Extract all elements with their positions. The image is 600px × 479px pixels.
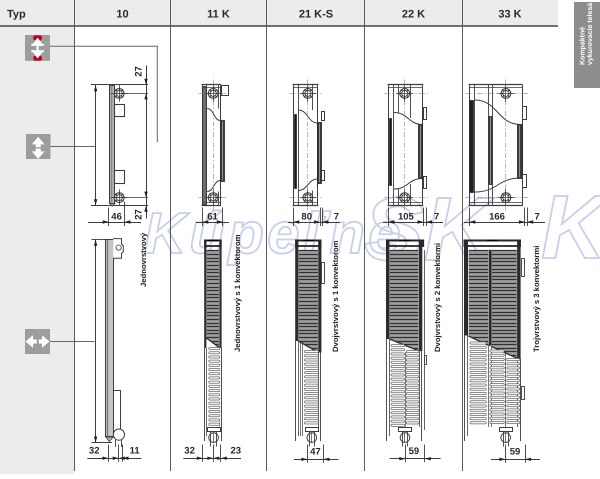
svg-text:Dvojvrstvový s 2 konvektormi: Dvojvrstvový s 2 konvektormi <box>433 243 442 352</box>
svg-text:Typ: Typ <box>7 9 26 21</box>
svg-text:Jednovrstvový s 1 konvektorom: Jednovrstvový s 1 konvektorom <box>233 234 242 352</box>
svg-text:Dvojvrstvový s 1 konvektorom: Dvojvrstvový s 1 konvektorom <box>331 240 340 352</box>
svg-text:10: 10 <box>116 9 128 21</box>
svg-text:80: 80 <box>301 211 312 222</box>
svg-text:23: 23 <box>231 446 242 457</box>
svg-text:32: 32 <box>184 446 195 457</box>
svg-text:K: K <box>541 178 600 278</box>
svg-text:Kompaktné: Kompaktné <box>579 27 587 65</box>
svg-text:7: 7 <box>334 211 339 222</box>
svg-text:27: 27 <box>134 66 145 77</box>
svg-text:22 K: 22 K <box>402 9 425 21</box>
svg-text:11 K: 11 K <box>207 9 230 21</box>
svg-text:59: 59 <box>409 446 420 457</box>
svg-text:32: 32 <box>89 446 100 457</box>
svg-text:7: 7 <box>434 211 439 222</box>
svg-text:27: 27 <box>134 209 145 220</box>
svg-text:21 K-S: 21 K-S <box>299 9 333 21</box>
svg-text:vykurovacie telesá: vykurovacie telesá <box>586 3 594 65</box>
svg-text:11: 11 <box>130 446 141 457</box>
svg-text:166: 166 <box>489 211 505 222</box>
svg-text:Trojvrstvový s 3 konvektormi: Trojvrstvový s 3 konvektormi <box>532 246 541 352</box>
svg-text:7: 7 <box>535 211 540 222</box>
svg-text:61: 61 <box>207 211 218 222</box>
svg-text:Jednovrstvový: Jednovrstvový <box>139 232 148 287</box>
svg-text:59: 59 <box>510 447 521 458</box>
svg-text:47: 47 <box>310 447 321 458</box>
svg-text:105: 105 <box>398 211 415 222</box>
svg-text:33 K: 33 K <box>498 9 521 21</box>
svg-text:46: 46 <box>111 211 122 222</box>
